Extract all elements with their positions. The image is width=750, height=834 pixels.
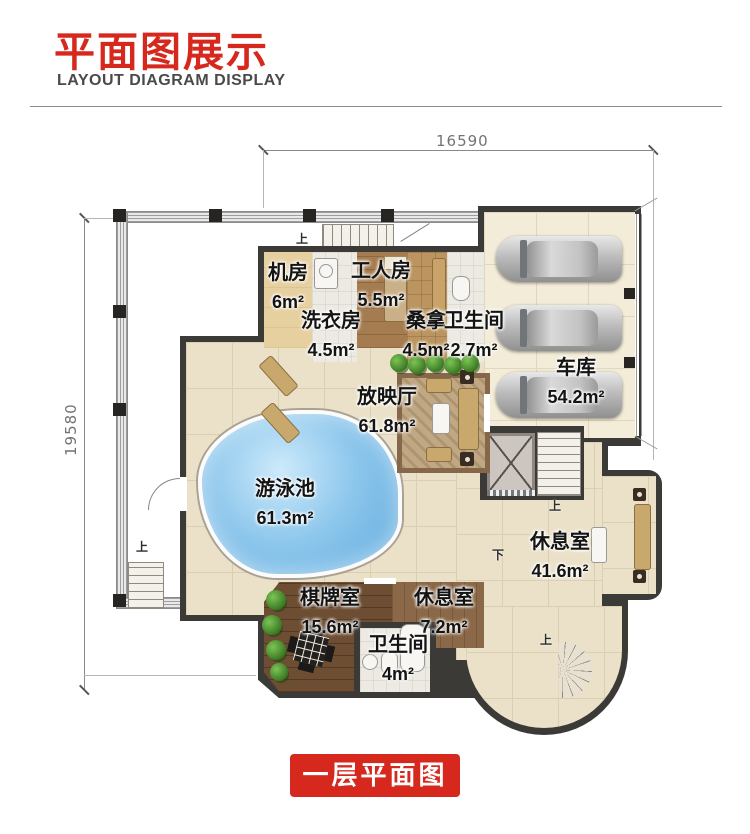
dimension-left-value: 19580	[62, 406, 80, 456]
cabinet	[633, 488, 646, 501]
room-label-youyongchi: 游泳池 61.3m²	[255, 474, 315, 533]
elevator	[487, 433, 535, 493]
column-icon	[113, 305, 126, 318]
coffee-table	[432, 403, 450, 434]
plant-icon	[270, 663, 288, 681]
column-icon	[624, 288, 635, 299]
washer-drum-icon	[319, 264, 333, 278]
stair-up-mark: 上	[136, 538, 148, 555]
floor-banner: 一层平面图	[290, 754, 460, 797]
door-opening	[484, 394, 490, 432]
column-icon	[113, 209, 126, 222]
armchair	[426, 447, 452, 462]
plant-icon	[266, 640, 286, 660]
stair-up-mark: 上	[540, 631, 552, 648]
column-icon	[381, 209, 394, 222]
column-icon	[209, 209, 222, 222]
driveway-chamfer	[634, 198, 657, 212]
room-label-fangyingting: 放映厅 61.8m²	[357, 382, 417, 441]
stairs-core	[537, 432, 581, 496]
dimension-line-top	[263, 150, 653, 151]
dimension-extension	[263, 150, 264, 208]
terrace-railing-top	[116, 211, 482, 223]
page-title: 平面图展示	[54, 18, 269, 78]
page-subtitle: LAYOUT DIAGRAM DISPLAY	[57, 72, 286, 90]
dimension-extension	[84, 675, 256, 676]
dimension-line-left	[84, 218, 85, 690]
car-top-view	[496, 236, 622, 282]
room-label-qipaishi: 棋牌室 15.6m²	[300, 583, 360, 642]
stairs-left	[128, 562, 164, 609]
cabinet	[633, 570, 646, 583]
door-opening	[179, 477, 187, 511]
armchair	[426, 378, 452, 393]
stair-arrow	[400, 223, 429, 242]
column-icon	[113, 403, 126, 416]
sofa	[458, 388, 479, 450]
dimension-extension	[653, 150, 654, 460]
door-swing-arc	[148, 478, 180, 510]
garage-door-line	[641, 214, 642, 436]
dimension-top-value: 16590	[436, 132, 489, 150]
stair-up-mark: 上	[296, 230, 308, 247]
console-table	[591, 527, 607, 563]
column-icon	[113, 594, 126, 607]
stair-up-mark: 上	[549, 497, 561, 514]
cabinet	[460, 452, 474, 466]
plant-icon	[262, 615, 282, 635]
cabinet	[460, 370, 474, 384]
garage-door-line	[636, 214, 637, 436]
room-label-xiuxishi-da: 休息室 41.6m²	[530, 527, 590, 586]
elevator-door	[487, 490, 535, 496]
room-label-weishengjian-top: 卫生间 2.7m²	[444, 306, 504, 365]
column-icon	[303, 209, 316, 222]
header-divider	[30, 106, 722, 107]
room-label-cheku: 车库 54.2m²	[547, 353, 604, 412]
stair-down-mark: 下	[492, 546, 504, 563]
door-opening	[364, 578, 396, 584]
room-label-weishengjian-xia: 卫生间 4m²	[368, 630, 428, 689]
column-icon	[624, 357, 635, 368]
toilet-icon	[452, 276, 470, 301]
plant-icon	[266, 590, 286, 610]
floorplan-page: 平面图展示 LAYOUT DIAGRAM DISPLAY 16590 19580	[0, 0, 750, 834]
dimension-extension	[84, 218, 116, 219]
room-label-sangna: 桑拿 4.5m²	[402, 306, 449, 365]
sofa	[634, 504, 651, 570]
car-top-view	[496, 305, 622, 351]
